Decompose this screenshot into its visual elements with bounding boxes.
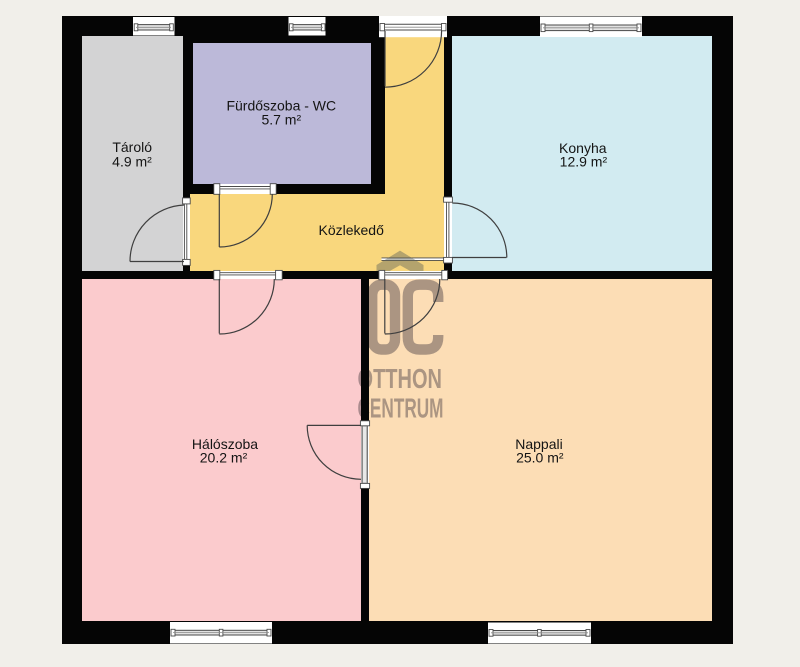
svg-text:4.9 m²: 4.9 m² (112, 153, 152, 169)
svg-text:20.2 m²: 20.2 m² (200, 450, 248, 466)
svg-text:25.0 m²: 25.0 m² (516, 450, 564, 466)
svg-text:5.7 m²: 5.7 m² (261, 111, 301, 127)
svg-text:OTTHON: OTTHON (358, 363, 443, 394)
svg-text:12.9 m²: 12.9 m² (560, 154, 608, 170)
svg-text:CENTRUM: CENTRUM (358, 393, 444, 424)
svg-text:Közlekedő: Közlekedő (319, 222, 385, 238)
